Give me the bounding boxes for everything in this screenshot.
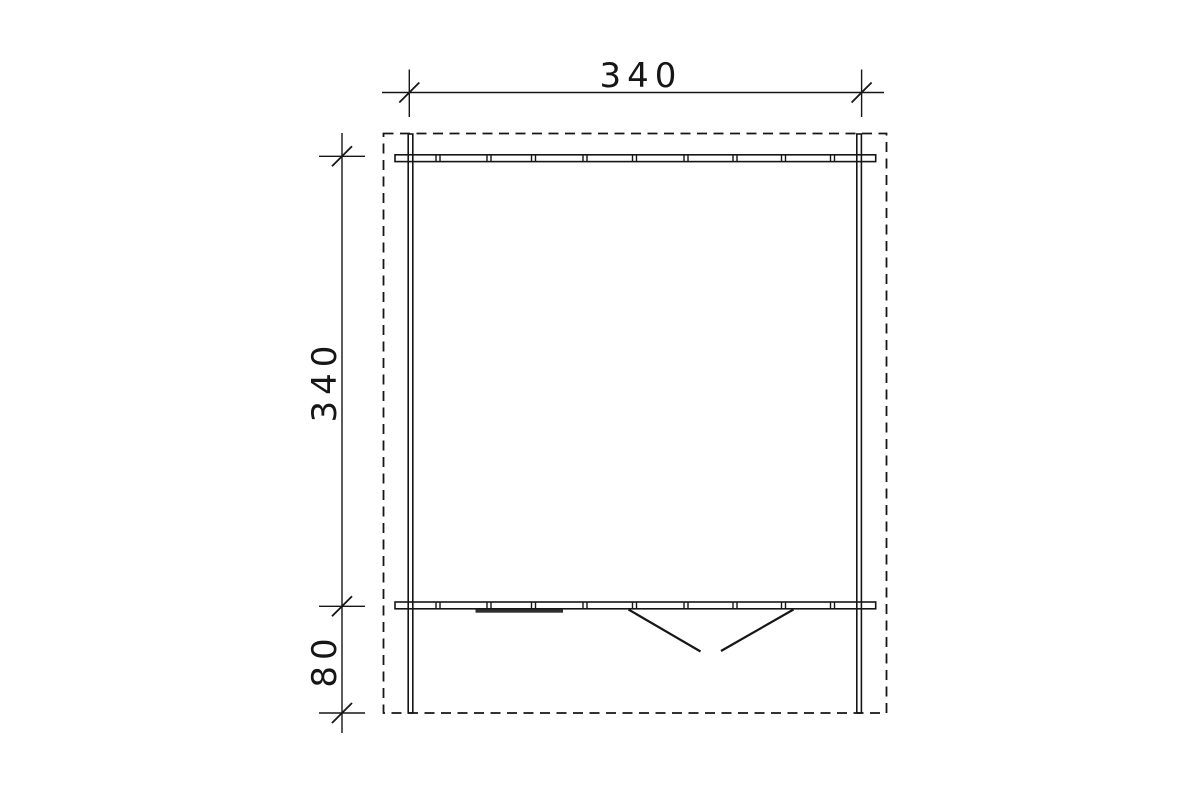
rear-wall-joints: [436, 155, 835, 161]
floor-plan-canvas: 340 340 80: [0, 0, 1200, 800]
door-swing-right-leaf: [721, 610, 794, 652]
door-swing-left-leaf: [629, 610, 701, 652]
left-side-wall: [408, 134, 413, 713]
rear-wall: [395, 155, 876, 162]
floor-plan-drawing: 340 340 80: [0, 0, 1200, 800]
dim-depth-value: 340: [305, 340, 345, 423]
dimension-depth: 340 80: [305, 133, 365, 733]
front-wall-joints: [436, 602, 835, 608]
dimension-width: 340: [382, 56, 884, 117]
front-wall: [395, 602, 876, 609]
dim-porch-value: 80: [305, 632, 345, 687]
dim-width-value: 340: [600, 56, 683, 96]
roof-overhang-outline: [384, 134, 887, 714]
right-side-wall: [857, 134, 862, 713]
window-marker: [476, 609, 564, 612]
